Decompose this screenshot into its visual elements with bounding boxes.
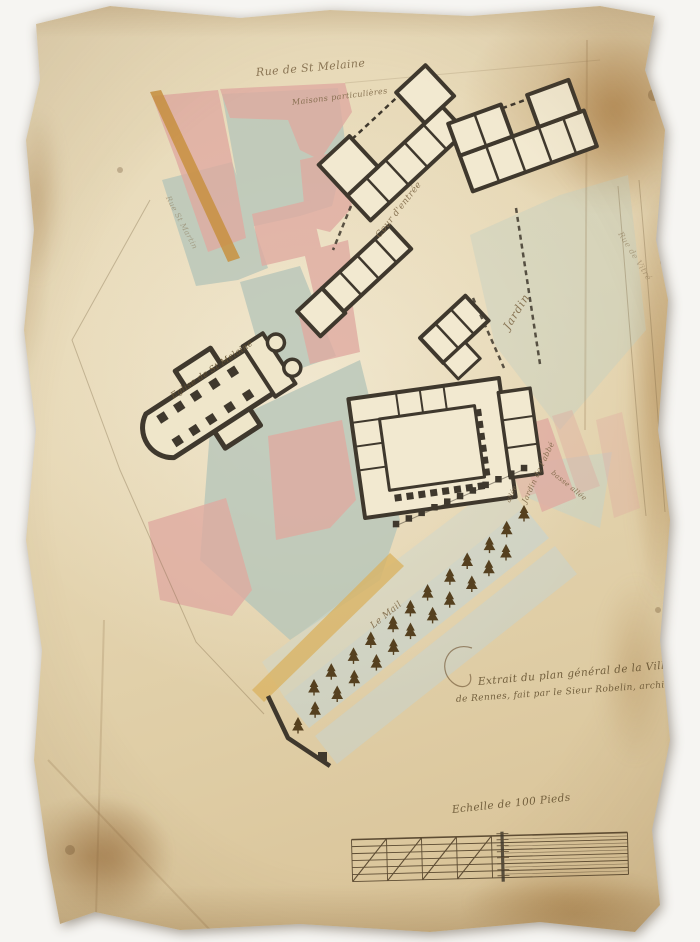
scale-ruler [351, 828, 628, 885]
paper-sheet-wrap: Rue de St Melaine Maisons particulières … [0, 0, 700, 942]
paper-sheet: Rue de St Melaine Maisons particulières … [0, 0, 700, 942]
cloister [348, 378, 515, 518]
tree-icon [293, 718, 303, 734]
scanned-plan-page: Rue de St Melaine Maisons particulières … [0, 0, 700, 942]
abbey-east-cluster [448, 79, 597, 192]
plan-drawing [0, 0, 700, 942]
